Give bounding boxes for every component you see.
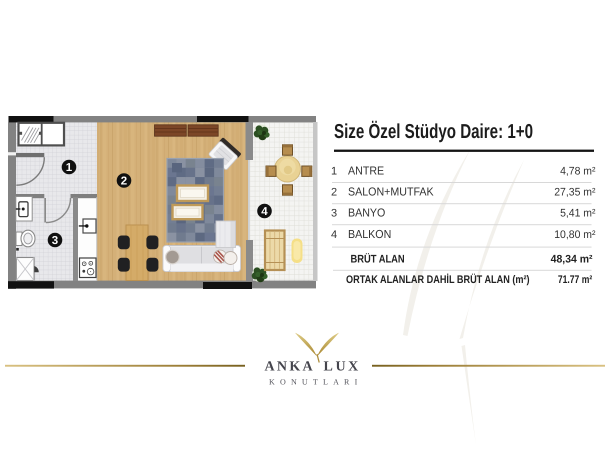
svg-text:3: 3 bbox=[52, 235, 58, 247]
svg-text:10,80 m²: 10,80 m² bbox=[554, 229, 596, 241]
svg-text:ORTAK ALANLAR DAHİL BRÜT ALAN: ORTAK ALANLAR DAHİL BRÜT ALAN (m²) bbox=[346, 273, 530, 286]
svg-text:SALON+MUTFAK: SALON+MUTFAK bbox=[348, 186, 434, 199]
svg-text:BALKON: BALKON bbox=[348, 228, 391, 241]
svg-text:Size Özel Stüdyo Daire: 1+0: Size Özel Stüdyo Daire: 1+0 bbox=[334, 120, 533, 143]
svg-text:LUX: LUX bbox=[324, 360, 361, 375]
svg-text:4: 4 bbox=[331, 229, 337, 241]
svg-text:3: 3 bbox=[331, 208, 337, 220]
svg-text:BRÜT ALAN: BRÜT ALAN bbox=[351, 253, 405, 266]
svg-text:5,41 m²: 5,41 m² bbox=[560, 208, 596, 220]
svg-text:ANKA: ANKA bbox=[265, 360, 315, 375]
svg-text:BANYO: BANYO bbox=[348, 207, 385, 220]
svg-text:ANTRE: ANTRE bbox=[348, 165, 384, 178]
svg-text:2: 2 bbox=[331, 187, 337, 199]
svg-text:KONUTLARI: KONUTLARI bbox=[269, 378, 362, 387]
svg-text:4,78 m²: 4,78 m² bbox=[560, 166, 596, 178]
svg-text:2: 2 bbox=[121, 175, 127, 187]
svg-text:48,34 m²: 48,34 m² bbox=[551, 254, 593, 266]
svg-text:71.77 m²: 71.77 m² bbox=[558, 274, 593, 286]
svg-text:1: 1 bbox=[331, 166, 337, 178]
svg-text:4: 4 bbox=[261, 206, 268, 218]
svg-text:1: 1 bbox=[66, 162, 73, 174]
svg-text:27,35 m²: 27,35 m² bbox=[554, 187, 596, 199]
